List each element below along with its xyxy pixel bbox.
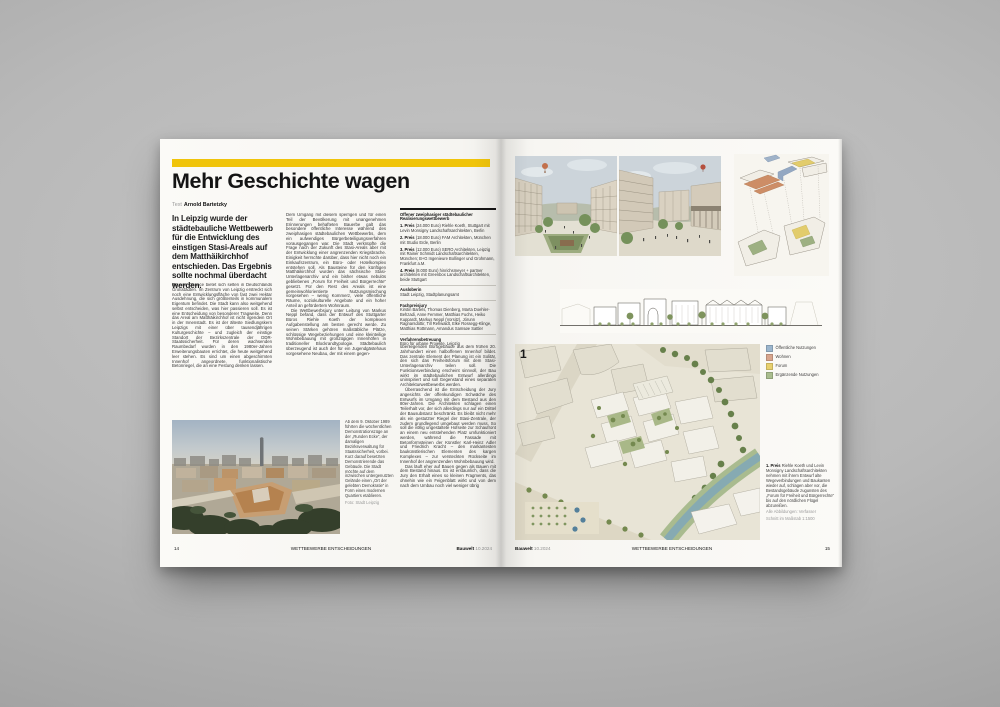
column-2-paragraph-1: Dem Umgang mit diesem sperrigen und für …	[286, 213, 386, 309]
legend-item-ergaenzend: Ergänzende Nutzungen	[766, 372, 838, 379]
section-text: Kirstin Bartels, Thomas Dienberg, Marta …	[400, 308, 496, 332]
legend-label: Ergänzende Nutzungen	[776, 373, 819, 378]
section-text: Stadt Leipzig, Stadtplanungsamt	[400, 293, 496, 298]
issue-name: Bauwelt	[456, 546, 474, 551]
competition-infobox: Offener zweiphasiger städtebaulicher Rea…	[400, 208, 496, 346]
legend-label: Forum	[776, 364, 788, 369]
legend-swatch-public	[766, 345, 773, 352]
byline: TextArnold Bartetzky	[172, 202, 227, 208]
section-label-right: WETTBEWERBE ENTSCHEIDUNGEN	[502, 546, 842, 551]
rendering-2-illustration	[619, 156, 721, 256]
rendering-plaza-view-1	[515, 156, 617, 256]
infobox-section-jury: Fachpreisjury Kirstin Bartels, Thomas Di…	[400, 300, 496, 331]
column-2-paragraph-2: Die Wettbewerbsjury unter Leitung von Ma…	[286, 309, 386, 357]
article-column-3: überliegenden Bürogebäude aus dem frühen…	[400, 345, 496, 543]
aerial-photo-leipzig	[172, 420, 340, 534]
exploded-axonometric-diagram	[734, 154, 829, 276]
legend-swatch-ergaenzend	[766, 372, 773, 379]
column-3-paragraph-3: Das läuft eher auf Bauen gegen als Bauen…	[400, 465, 496, 489]
legend-item-public: Öffentliche Nutzungen	[766, 345, 838, 352]
issue-number: 10.2024	[475, 546, 492, 551]
rendering-1-illustration	[515, 156, 617, 256]
aerial-photo-illustration	[172, 420, 340, 534]
prize-3-text: (12.000 Euro) SERO Architekten, Leipzig …	[400, 247, 495, 266]
legend-label: Öffentliche Nutzungen	[776, 346, 816, 351]
column-1-text: eine Chance bietet sich selten in Deutsc…	[172, 283, 272, 368]
prize-row-4: 4. Preis (8.000 Euro) hinrichsmeyer + pa…	[400, 269, 496, 283]
page-number-right: 15	[825, 546, 830, 551]
prize-row-1: 1. Preis (24.000 Euro) Riehle Koeth, Stu…	[400, 224, 496, 233]
infobox-section-verfahren: Verfahrensbetreuung Büro für urbane Proj…	[400, 334, 496, 345]
article-column-2: Dem Umgang mit diesem sperrigen und für …	[286, 213, 386, 413]
author-name: Arnold Bartetzky	[184, 202, 227, 208]
photo-credit: Foto: Stadt Leipzig	[345, 501, 395, 506]
caption-credit-1: Alle Abbildungen: Verfasser	[766, 510, 838, 515]
elevation-illustration	[560, 289, 822, 333]
page-title: Mehr Geschichte wagen	[172, 170, 492, 192]
column-3-paragraph-1: überliegenden Bürogebäude aus dem frühen…	[400, 345, 496, 388]
prize-row-3: 3. Preis (12.000 Euro) SERO Architekten,…	[400, 248, 496, 267]
legend-item-forum: Forum	[766, 363, 838, 370]
page-left: Mehr Geschichte wagen TextArnold Bartetz…	[160, 139, 502, 567]
prize-row-2: 2. Preis (18.000 Euro) FAM Architekten, …	[400, 236, 496, 245]
section-label-left: WETTBEWERBE ENTSCHEIDUNGEN	[160, 546, 502, 551]
article-column-1: So eine Chance bietet sich selten in Deu…	[172, 283, 272, 413]
legend-swatch-forum	[766, 363, 773, 370]
legend-item-wohnen: Wohnen	[766, 354, 838, 361]
photo-caption-text: Ab dem 9. Oktober 1989 führten die wöche…	[345, 420, 393, 498]
legend-label: Wohnen	[776, 355, 791, 360]
rendering-plaza-view-2	[619, 156, 721, 256]
article-intro: In Leipzig wurde der städtebauliche Wett…	[172, 214, 278, 290]
byline-label: Text	[172, 202, 182, 208]
photo-caption: Ab dem 9. Oktober 1989 führten die wöche…	[345, 420, 395, 536]
elevation-drawing	[560, 289, 822, 333]
infobox-title: Offener zweiphasiger städtebaulicher Rea…	[400, 213, 496, 222]
figure-number: 1	[520, 347, 527, 361]
legend-swatch-wohnen	[766, 354, 773, 361]
infobox-section-ausloberin: Ausloberin Stadt Leipzig, Stadtplanungsa…	[400, 285, 496, 298]
axonometric-illustration	[734, 154, 829, 276]
siteplan-caption: 1. Preis Riehle Koeth und Levin Monsigny…	[766, 464, 838, 544]
accent-bar	[172, 159, 490, 167]
siteplan-axonometric	[515, 344, 760, 540]
issue-label-left: Bauwelt 10.2024	[456, 546, 492, 551]
caption-text: Riehle Koeth und Levin Monsigny Landscha…	[766, 463, 834, 508]
page-right: 1 Öffentliche Nutzungen Wohnen Forum Erg…	[502, 139, 842, 567]
landuse-legend: Öffentliche Nutzungen Wohnen Forum Ergän…	[766, 345, 838, 381]
siteplan-illustration	[515, 344, 760, 540]
caption-credit-2: Schnitt im Maßstab 1:1500	[766, 517, 838, 522]
column-3-paragraph-2: Überraschend ist die Entscheidung der Ju…	[400, 388, 496, 465]
magazine-spread: Mehr Geschichte wagen TextArnold Bartetz…	[160, 139, 842, 567]
